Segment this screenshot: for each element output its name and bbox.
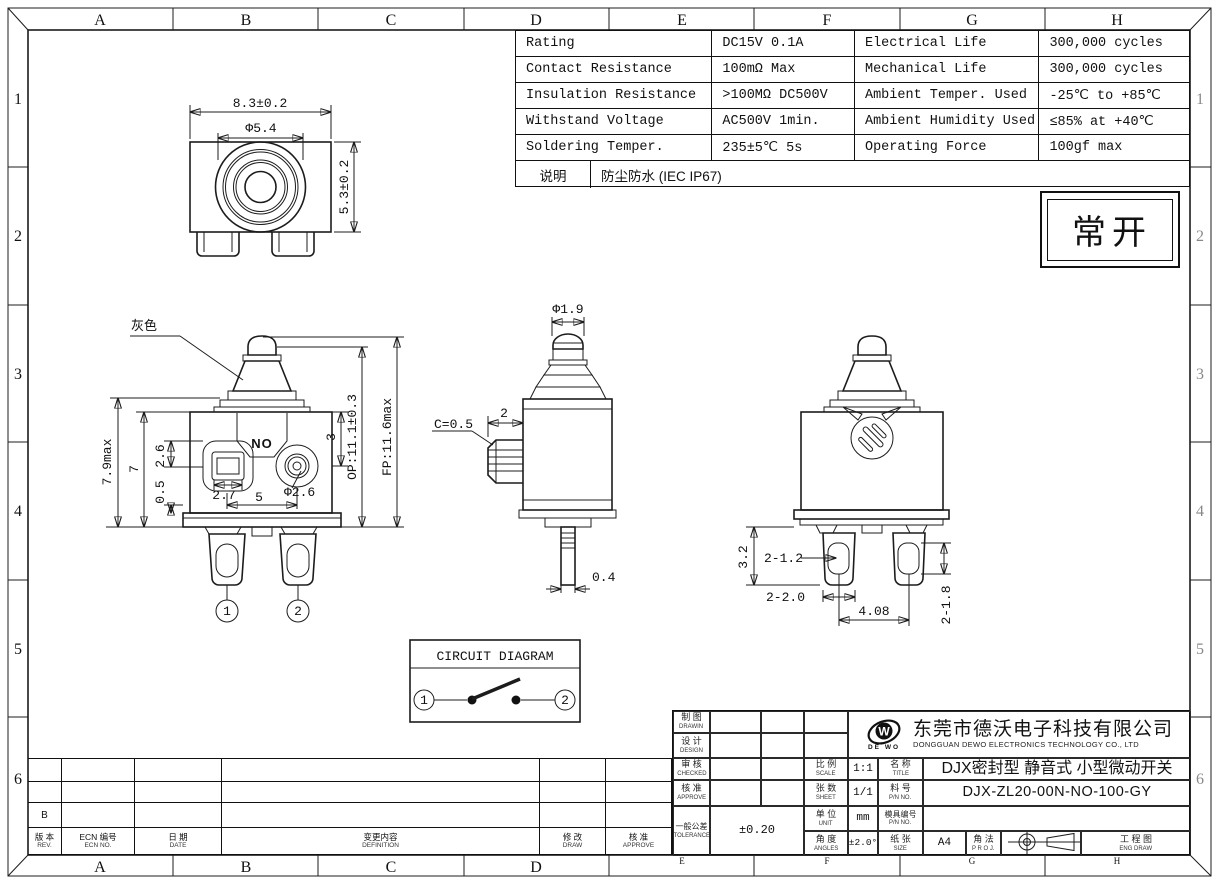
rev-cell <box>62 759 135 782</box>
date-en: DATE <box>170 842 187 849</box>
drawn-cn: 制 图 <box>681 713 702 723</box>
spec-label: Ambient Humidity Used <box>855 109 1039 134</box>
revision-header-row: 版 本 REV. ECN 编号 ECN NO. 日 期 DATE 变更内容 DE… <box>28 828 672 855</box>
spec-label: Withstand Voltage <box>516 109 712 134</box>
engdraw-en: ENG DRAW <box>1120 845 1153 852</box>
dim-front-3: 3 <box>324 433 339 441</box>
dim-back-32: 3.2 <box>736 545 751 568</box>
signature-cell <box>804 733 848 758</box>
sheet-cn: 张 数 <box>816 784 837 794</box>
date-cn: 日 期 <box>168 833 187 842</box>
dim-back-2x12: 2-1.2 <box>764 551 803 566</box>
zone-bottom-a: A <box>94 859 106 876</box>
rev-en: REV. <box>37 842 52 849</box>
scale-value: 1:1 <box>848 758 878 780</box>
approve-header-en: APPROVE <box>623 842 654 849</box>
checked-cn: 审 核 <box>681 760 702 770</box>
name-label: 名 称 TITLE <box>878 758 923 780</box>
angles-label: 角 度 ANGLES <box>804 831 848 856</box>
sheet-en: SHEET <box>816 795 836 802</box>
approve-en: APPROVE <box>677 795 706 802</box>
dim-top-width: 8.3±0.2 <box>233 96 288 111</box>
name-cn: 名 称 <box>890 760 911 770</box>
size-en: SIZE <box>894 845 907 852</box>
titleblock-tolerance-label: 一般公差 TOLERANCE <box>673 806 710 856</box>
design-cn: 设 计 <box>681 737 702 747</box>
unit-cn: 单 位 <box>816 810 837 820</box>
signature-cell <box>710 780 761 806</box>
circuit-title: CIRCUIT DIAGRAM <box>436 649 553 664</box>
front-view: 灰色 NO 1 2 <box>100 318 404 622</box>
pn-label: 料 号 P/N NO. <box>878 780 923 806</box>
rev-cell <box>222 759 540 782</box>
zone-top-e: E <box>677 12 687 29</box>
dim-side-04: 0.4 <box>592 570 616 585</box>
definition-en: DEFINITION <box>362 842 399 849</box>
draw-en: DRAW <box>563 842 583 849</box>
engdraw-cn: 工 程 图 <box>1120 835 1152 845</box>
signature-cell <box>761 780 804 806</box>
engineering-drawing-sheet: A B C D E F G H A B C D E F G H 1 2 3 4 … <box>0 0 1219 884</box>
spec-value: -25℃ to +85℃ <box>1039 83 1189 108</box>
rev-cell <box>62 803 135 828</box>
pn-en: P/N NO. <box>889 795 911 802</box>
scale-en: SCALE <box>816 771 836 778</box>
tolerance-cn: 一般公差 <box>676 823 708 832</box>
size-cn: 纸 张 <box>890 835 911 845</box>
size-label: 纸 张 SIZE <box>878 831 923 856</box>
dim-back-2x18: 2-1.8 <box>939 585 954 624</box>
zone-top-h: H <box>1111 12 1123 29</box>
spec-row: Withstand Voltage AC500V 1min. Ambient H… <box>516 109 1189 135</box>
spec-label: Ambient Temper. Used <box>855 83 1039 108</box>
unit-value: mm <box>848 806 878 831</box>
titleblock-drawn-label: 制 图 DRAWIN <box>673 711 710 733</box>
state-box: 常开 <box>1040 191 1180 268</box>
zone-right-3: 3 <box>1196 366 1204 383</box>
sheet-value: 1/1 <box>848 780 878 806</box>
zone-left-1: 1 <box>14 91 22 108</box>
date-header: 日 期 DATE <box>135 828 222 855</box>
mold-cn: 模具编号 <box>885 811 917 820</box>
signature-cell <box>804 711 848 733</box>
zone-bottom-b: B <box>241 859 252 876</box>
revision-row <box>28 758 672 782</box>
front-terminal-2: 2 <box>294 604 302 619</box>
titleblock-approve-label: 核 准 APPROVE <box>673 780 710 806</box>
draw-header: 修 改 DRAW <box>540 828 606 855</box>
dim-front-op: OP:11.1±0.3 <box>345 394 360 480</box>
rev-cell <box>606 803 672 828</box>
revision-row <box>28 782 672 803</box>
spec-row: Insulation Resistance >100MΩ DC500V Ambi… <box>516 83 1189 109</box>
spec-value: 100mΩ Max <box>712 57 855 82</box>
zone-right-4: 4 <box>1196 503 1204 520</box>
dim-top-circle: Φ5.4 <box>245 121 276 136</box>
name-en: TITLE <box>892 771 908 778</box>
spec-value: ≤85% at +40℃ <box>1039 109 1189 134</box>
rev-cell <box>540 803 606 828</box>
zone-bottom-h: H <box>1114 856 1121 866</box>
zone-top-a: A <box>94 12 106 29</box>
rev-cell <box>135 803 222 828</box>
zone-left-2: 2 <box>14 228 22 245</box>
approve-header-cn: 核 准 <box>629 833 648 842</box>
zone-top-g: G <box>966 12 978 29</box>
zone-bottom-c: C <box>386 859 397 876</box>
zone-left-5: 5 <box>14 641 22 658</box>
proj-label: 角 法 P R O J. <box>966 831 1001 856</box>
dim-front-27: 2.7 <box>212 488 235 503</box>
design-en: DESIGN <box>680 747 703 754</box>
definition-header: 变更内容 DEFINITION <box>222 828 540 855</box>
zone-top-b: B <box>241 12 252 29</box>
titleblock-design-label: 设 计 DESIGN <box>673 733 710 758</box>
rev-cell <box>135 782 222 803</box>
drawing-title: DJX密封型 静音式 小型微动开关 <box>923 758 1191 780</box>
engdraw-label: 工 程 图 ENG DRAW <box>1081 831 1191 856</box>
side-view: Φ1.9 C=0.5 2 0.4 <box>432 302 616 593</box>
titleblock-checked-label: 审 核 CHECKED <box>673 758 710 780</box>
spec-label: Rating <box>516 31 712 56</box>
rev-cell <box>540 759 606 782</box>
logo-w: W <box>878 724 890 738</box>
dim-side-phi19: Φ1.9 <box>552 302 583 317</box>
dim-back-408: 4.08 <box>858 604 889 619</box>
rev-cn: 版 本 <box>35 833 54 842</box>
company-name-cn: 东莞市德沃电子科技有限公司 <box>913 720 1173 741</box>
rev-letter: B <box>28 803 62 828</box>
spec-value: 235±5℃ 5s <box>712 135 855 160</box>
spec-label: Contact Resistance <box>516 57 712 82</box>
zone-left-3: 3 <box>14 366 22 383</box>
spec-table: Rating DC15V 0.1A Electrical Life 300,00… <box>515 30 1190 187</box>
proj-en: P R O J. <box>972 845 994 852</box>
tolerance-en: TOLERANCE <box>673 832 709 839</box>
logo-text: DE WO <box>868 744 900 751</box>
spec-label: Mechanical Life <box>855 57 1039 82</box>
drawn-en: DRAWIN <box>679 724 703 731</box>
rev-cell <box>62 782 135 803</box>
spec-value: 100gf max <box>1039 135 1189 160</box>
approve-header: 核 准 APPROVE <box>606 828 672 855</box>
checked-en: CHECKED <box>677 771 706 778</box>
signature-cell <box>710 733 761 758</box>
revision-table: B 版 本 REV. ECN 编号 ECN NO. 日 期 DATE 变更内容 … <box>28 758 672 855</box>
spec-row: Rating DC15V 0.1A Electrical Life 300,00… <box>516 31 1189 57</box>
dim-side-chamfer: C=0.5 <box>434 417 473 432</box>
rev-cell <box>222 782 540 803</box>
mold-label: 模具编号 P/N NO. <box>878 806 923 831</box>
dim-front-height-max: 7.9max <box>100 438 115 485</box>
ecn-cn: ECN 编号 <box>79 833 116 842</box>
circuit-diagram: CIRCUIT DIAGRAM 1 2 <box>410 640 580 722</box>
front-color-label: 灰色 <box>131 318 157 333</box>
state-box-text: 常开 <box>1047 199 1173 261</box>
zone-top-c: C <box>386 12 397 29</box>
company-cell: W DE WO 东莞市德沃电子科技有限公司 DONGGUAN DEWO ELEC… <box>848 711 1191 758</box>
rev-header: 版 本 REV. <box>28 828 62 855</box>
signature-cell <box>761 733 804 758</box>
dim-side-2: 2 <box>500 406 508 421</box>
spec-label: Soldering Temper. <box>516 135 712 160</box>
zone-top-d: D <box>530 12 542 29</box>
rev-cell <box>28 782 62 803</box>
dim-front-26: 2.6 <box>153 444 168 467</box>
circuit-node-1: 1 <box>420 693 428 708</box>
zone-bottom-f: F <box>824 856 829 866</box>
rev-cell <box>222 803 540 828</box>
signature-cell <box>710 711 761 733</box>
angles-value: ±2.0° <box>848 831 878 856</box>
ecn-en: ECN NO. <box>84 842 111 849</box>
unit-en: UNIT <box>819 820 833 827</box>
spec-row: Contact Resistance 100mΩ Max Mechanical … <box>516 57 1189 83</box>
mold-value <box>923 806 1191 831</box>
scale-label: 比 例 SCALE <box>804 758 848 780</box>
dim-back-2x20: 2-2.0 <box>766 590 805 605</box>
zone-bottom-g: G <box>969 856 976 866</box>
zone-right-5: 5 <box>1196 641 1204 658</box>
dim-front-05: 0.5 <box>153 480 168 503</box>
spec-value: >100MΩ DC500V <box>712 83 855 108</box>
dim-front-height: 7 <box>127 465 142 473</box>
rev-cell <box>135 759 222 782</box>
revision-row: B <box>28 803 672 828</box>
dim-top-height: 5.3±0.2 <box>337 160 352 215</box>
spec-label: Operating Force <box>855 135 1039 160</box>
circuit-node-2: 2 <box>561 693 569 708</box>
front-terminal-1: 1 <box>223 604 231 619</box>
rev-cell <box>28 759 62 782</box>
spec-row: Soldering Temper. 235±5℃ 5s Operating Fo… <box>516 135 1189 161</box>
zone-right-6: 6 <box>1196 771 1204 788</box>
unit-label: 单 位 UNIT <box>804 806 848 831</box>
spec-value: AC500V 1min. <box>712 109 855 134</box>
part-number: DJX-ZL20-00N-NO-100-GY <box>923 780 1191 806</box>
angles-en: ANGLES <box>814 845 838 852</box>
front-marking: NO <box>251 436 273 451</box>
zone-top-f: F <box>823 12 832 29</box>
definition-cn: 变更内容 <box>363 833 397 842</box>
top-view: 8.3±0.2 Φ5.4 5.3±0.2 <box>190 96 361 256</box>
signature-cell <box>761 758 804 780</box>
spec-label: Insulation Resistance <box>516 83 712 108</box>
signature-cell <box>761 711 804 733</box>
pn-cn: 料 号 <box>890 784 911 794</box>
dim-front-fp: FP:11.6max <box>380 398 395 476</box>
dewo-logo-icon: W DE WO <box>861 719 907 751</box>
dim-front-5: 5 <box>255 490 263 505</box>
spec-value: 300,000 cycles <box>1039 57 1189 82</box>
zone-left-4: 4 <box>14 503 22 520</box>
angles-cn: 角 度 <box>816 835 837 845</box>
title-block: 制 图 DRAWIN 设 计 DESIGN 审 核 CHECKED 核 准 AP… <box>672 710 1190 855</box>
mold-en: P/N NO. <box>889 820 911 827</box>
spec-note-row: 说明 防尘防水 (IEC IP67) <box>516 161 1189 188</box>
spec-label: Electrical Life <box>855 31 1039 56</box>
spec-note-value: 防尘防水 (IEC IP67) <box>591 161 1189 188</box>
approve-cn: 核 准 <box>681 784 702 794</box>
zone-right-2: 2 <box>1196 228 1204 245</box>
company-name-en: DONGGUAN DEWO ELECTRONICS TECHNOLOGY CO.… <box>913 741 1173 749</box>
scale-cn: 比 例 <box>816 760 837 770</box>
rev-cell <box>606 782 672 803</box>
zone-right-1: 1 <box>1196 91 1204 108</box>
size-value: A4 <box>923 831 966 856</box>
tolerance-value: ±0.20 <box>710 806 804 856</box>
spec-value: 300,000 cycles <box>1039 31 1189 56</box>
sheet-label: 张 数 SHEET <box>804 780 848 806</box>
ecn-header: ECN 编号 ECN NO. <box>62 828 135 855</box>
rev-cell <box>540 782 606 803</box>
draw-cn: 修 改 <box>563 833 582 842</box>
dim-front-phi26: Φ2.6 <box>284 485 315 500</box>
dewo-logo-mark-icon <box>843 407 901 459</box>
rev-cell <box>606 759 672 782</box>
spec-note-label: 说明 <box>516 161 591 188</box>
back-view: 3.2 2-1.2 2-2.0 4.08 2-1.8 <box>736 336 954 626</box>
zone-bottom-d: D <box>530 859 542 876</box>
proj-cn: 角 法 <box>973 835 994 845</box>
signature-cell <box>710 758 761 780</box>
spec-value: DC15V 0.1A <box>712 31 855 56</box>
proj-symbol-cell <box>1001 831 1081 856</box>
zone-bottom-e: E <box>679 856 685 866</box>
zone-left-6: 6 <box>14 771 22 788</box>
